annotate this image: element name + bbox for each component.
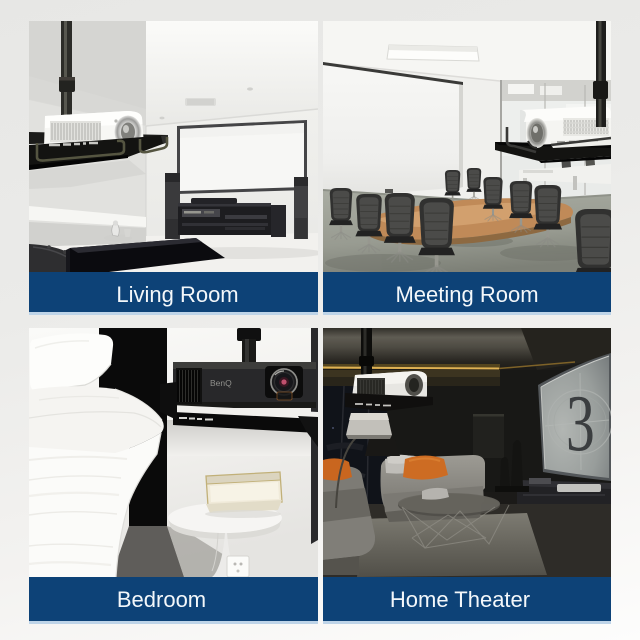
svg-text:BenQ: BenQ [210, 378, 232, 388]
svg-text:3: 3 [566, 380, 595, 468]
